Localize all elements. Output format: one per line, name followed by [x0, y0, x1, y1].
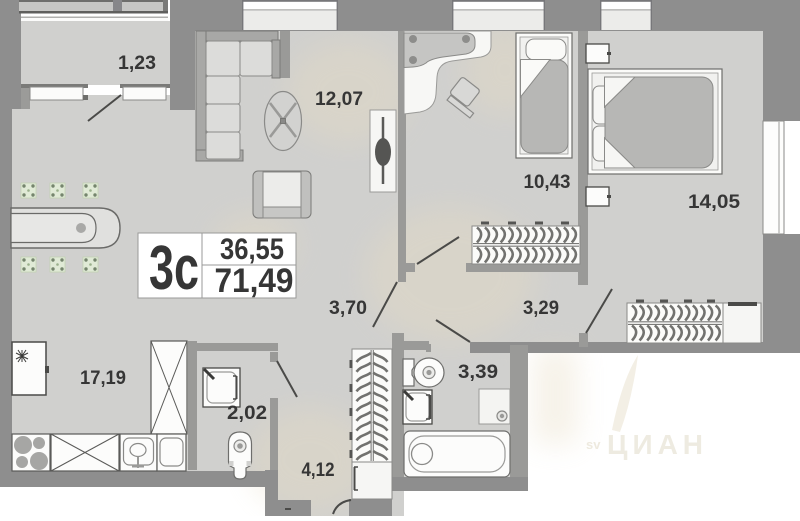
svg-text:2,02: 2,02 — [227, 403, 267, 424]
svg-text:3,39: 3,39 — [458, 362, 498, 383]
svg-text:3,29: 3,29 — [523, 298, 559, 319]
svg-text:sv: sv — [586, 437, 601, 452]
svg-text:17,19: 17,19 — [80, 368, 126, 389]
svg-text:71,49: 71,49 — [215, 262, 294, 300]
svg-text:12,07: 12,07 — [315, 89, 363, 110]
svg-text:10,43: 10,43 — [524, 172, 571, 193]
svg-text:ЦИАН: ЦИАН — [607, 429, 708, 460]
svg-text:1,23: 1,23 — [118, 53, 156, 74]
svg-text:4,12: 4,12 — [302, 460, 335, 481]
svg-text:3с: 3с — [149, 234, 199, 303]
svg-text:14,05: 14,05 — [688, 192, 740, 213]
svg-text:3,70: 3,70 — [329, 298, 367, 319]
